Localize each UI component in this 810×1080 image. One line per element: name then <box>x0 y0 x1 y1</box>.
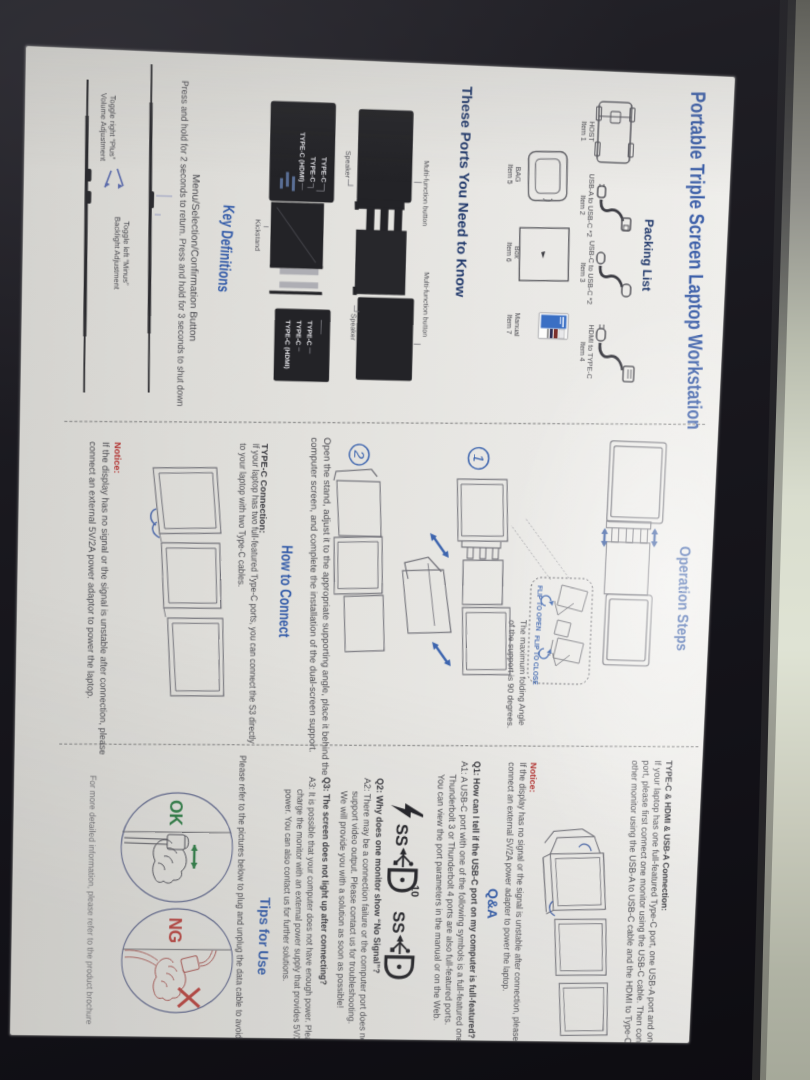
svg-text:Speaker: Speaker <box>343 151 351 179</box>
svg-text:Multi-function button: Multi-function button <box>421 160 430 226</box>
svg-text:SS: SS <box>389 911 409 934</box>
svg-text:TYPE-C: TYPE-C <box>319 157 326 183</box>
svg-text:Multi-function button: Multi-function button <box>421 272 430 337</box>
svg-text:FLIP TO CLOSE: FLIP TO CLOSE <box>531 635 540 685</box>
svg-text:NG: NG <box>165 917 185 943</box>
svg-text:2: 2 <box>350 449 367 459</box>
svg-text:Kickstand: Kickstand <box>253 219 261 251</box>
svg-text:FLIP TO OPEN: FLIP TO OPEN <box>534 585 542 631</box>
svg-text:TYPE-C: TYPE-C <box>305 321 312 346</box>
svg-text:TYPE-C: TYPE-C <box>294 320 301 345</box>
svg-text:TYPE-C (HDMI): TYPE-C (HDMI) <box>297 132 305 182</box>
svg-text:TYPE-C (HDMI): TYPE-C (HDMI) <box>283 320 291 369</box>
svg-text:1: 1 <box>469 454 485 463</box>
svg-text:TYPE-C: TYPE-C <box>308 157 315 183</box>
svg-text:Speaker: Speaker <box>349 313 357 341</box>
svg-text:10: 10 <box>409 885 421 897</box>
svg-text:OK: OK <box>166 800 186 826</box>
svg-text:SS: SS <box>392 824 412 847</box>
